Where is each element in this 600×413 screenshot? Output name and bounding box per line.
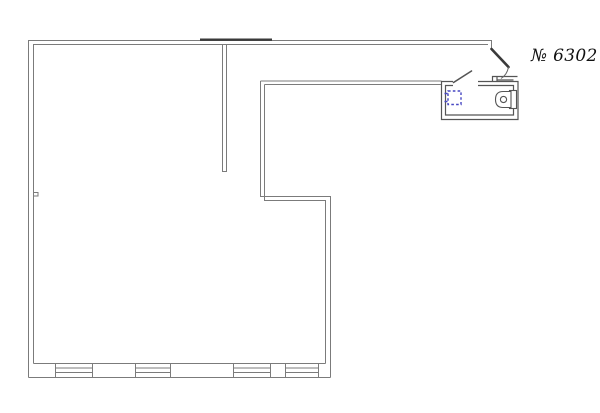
right-wall-inner: [265, 85, 326, 364]
entry: [492, 49, 509, 79]
partition-lines: [223, 45, 227, 172]
floor-plan-canvas: [0, 0, 600, 413]
interior-partition: [223, 45, 227, 172]
bathroom-door-icon: [454, 71, 472, 83]
bathroom-parapet: [493, 77, 518, 82]
window-icon: [56, 364, 93, 378]
step-walls: [261, 81, 331, 378]
toilet-icon: [496, 91, 517, 109]
corridor-wall: [261, 81, 442, 85]
right-wall-outer: [261, 81, 331, 378]
unit-number-label: № 6302: [531, 46, 599, 66]
window-icon: [234, 364, 271, 378]
entry-door-icon: [492, 49, 509, 67]
floor-plan-page: № 6302: [0, 0, 600, 413]
sink-outline: [448, 91, 461, 105]
window-wall: [29, 364, 331, 378]
sink-icon: [445, 91, 462, 105]
left-wall-notch: [34, 193, 39, 197]
window-icon: [286, 364, 319, 378]
bathroom: [442, 71, 519, 120]
window-icon: [136, 364, 171, 378]
toilet-drain: [500, 96, 506, 102]
